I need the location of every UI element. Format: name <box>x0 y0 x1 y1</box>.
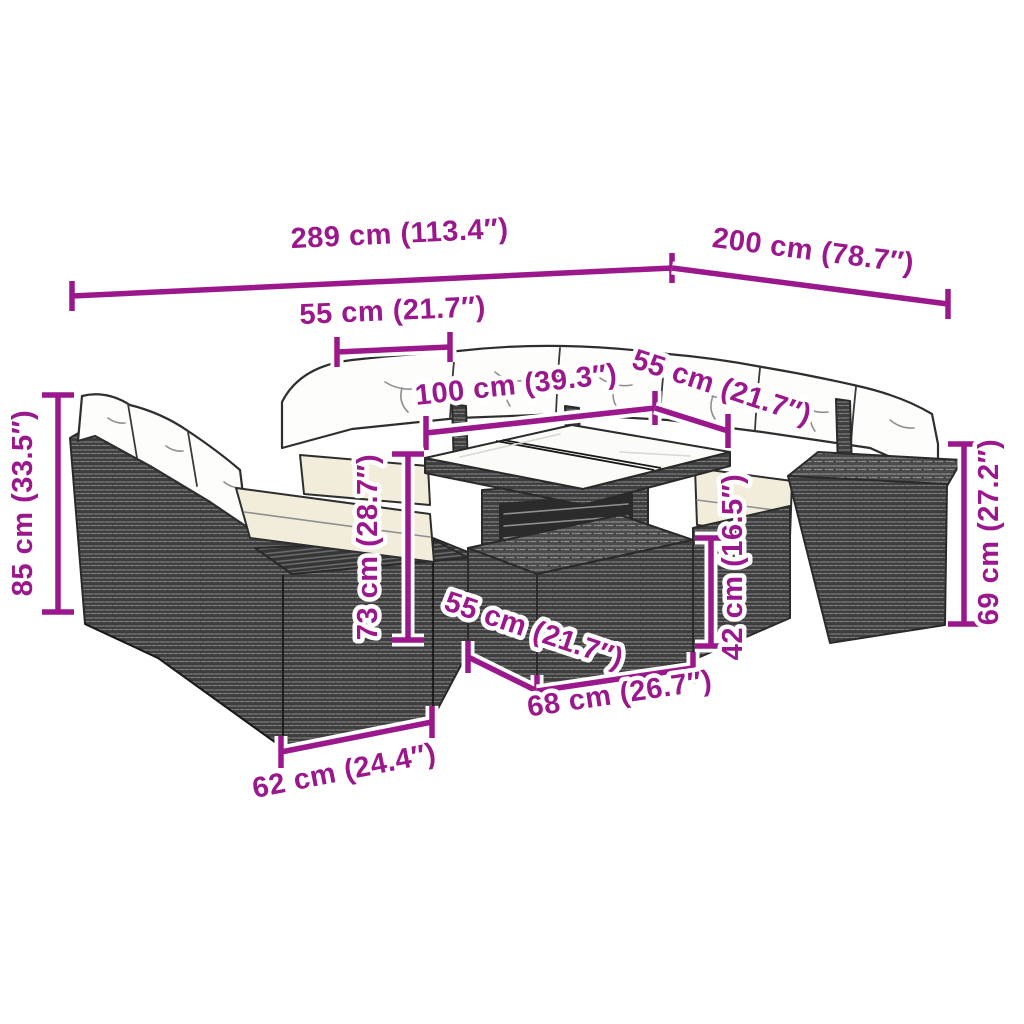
armrest-front-face <box>788 476 947 643</box>
dimension-label: 289 cm (113.4″) <box>290 213 509 255</box>
right-armrest <box>788 452 962 643</box>
product-dimension-diagram: 289 cm (113.4″) 200 cm (78.7″) 55 cm (21… <box>0 0 1024 1024</box>
dimension-label: 69 cm (27.2″) <box>973 439 1005 625</box>
diagram-svg: 289 cm (113.4″) 200 cm (78.7″) 55 cm (21… <box>0 0 1024 1024</box>
dimension-label: 42 cm (16.5″) <box>717 474 749 660</box>
dimension-sofa-total-depth: 200 cm (78.7″) <box>672 222 948 319</box>
dimension-label: 55 cm (21.7″) <box>299 291 487 331</box>
dimension-label: 85 cm (33.5″) <box>7 410 39 596</box>
dimension-label: 73 cm (28.7″) <box>352 454 384 640</box>
dimension-backrest-height: 85 cm (33.5″) <box>7 395 74 612</box>
